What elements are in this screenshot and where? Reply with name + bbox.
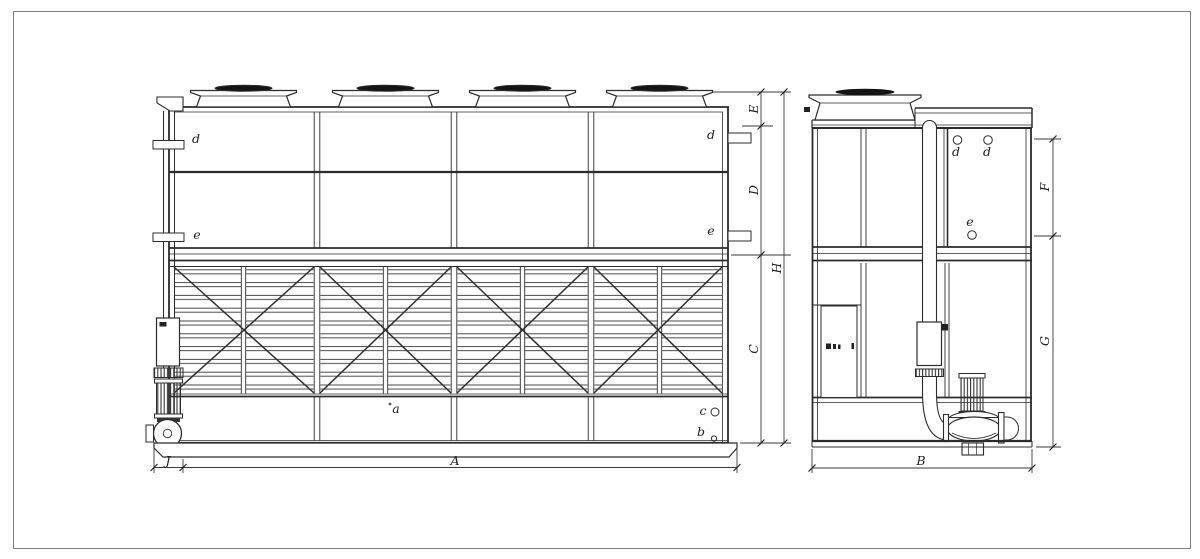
side-label-e: e	[966, 216, 973, 229]
front-connection-markers	[389, 403, 719, 442]
side-label-d-1: d	[952, 146, 960, 159]
marker-c-circle	[711, 408, 719, 416]
side-access-door	[812, 305, 861, 398]
cooling-tower-technical-drawing: E D C H F G A J B d d e e a c b d d e	[0, 0, 1200, 559]
side-riser-pipe	[916, 121, 949, 441]
front-label-d-left: d	[192, 133, 200, 146]
marker-a-dot	[389, 403, 392, 406]
dim-label-C: C	[748, 344, 761, 354]
front-label-a: a	[392, 403, 399, 416]
front-label-b: b	[697, 426, 705, 439]
front-fans	[191, 85, 713, 107]
dim-label-F: F	[1039, 183, 1052, 192]
front-label-e-right: e	[707, 225, 714, 238]
fan-icon	[470, 85, 576, 107]
side-base	[812, 441, 1032, 447]
dim-label-J: J	[165, 455, 170, 468]
side-fan	[809, 89, 921, 120]
valve-actuator-mark	[942, 324, 949, 331]
side-view	[804, 89, 1032, 455]
dim-label-B: B	[916, 455, 925, 468]
marker-e-circle	[968, 231, 977, 240]
fan-motor-mark	[804, 107, 810, 112]
dim-label-D: D	[748, 185, 761, 195]
dim-label-G: G	[1039, 336, 1052, 346]
fan-icon	[607, 85, 713, 107]
side-label-d-2: d	[983, 146, 991, 159]
fan-icon	[333, 85, 439, 107]
dim-label-E: E	[748, 104, 761, 113]
front-label-c: c	[699, 405, 706, 418]
dim-label-A: A	[450, 455, 459, 468]
front-label-e-left: e	[193, 229, 200, 242]
front-label-d-right: d	[707, 129, 715, 142]
front-view	[146, 85, 751, 457]
pipe-valve-box	[917, 322, 942, 366]
door-handle	[852, 343, 855, 349]
pipe-flange	[916, 369, 944, 377]
dim-label-H: H	[771, 263, 784, 274]
pump-volute	[948, 417, 1001, 441]
front-louver-fill-section	[175, 267, 722, 394]
side-pump	[944, 374, 1019, 456]
pump-motor	[961, 378, 983, 411]
drawing-linework	[0, 0, 1200, 559]
front-base	[154, 443, 737, 457]
pump-foundation	[962, 443, 984, 455]
fan-icon	[809, 95, 921, 120]
fan-icon	[191, 85, 297, 107]
door-label-marks	[826, 344, 831, 350]
